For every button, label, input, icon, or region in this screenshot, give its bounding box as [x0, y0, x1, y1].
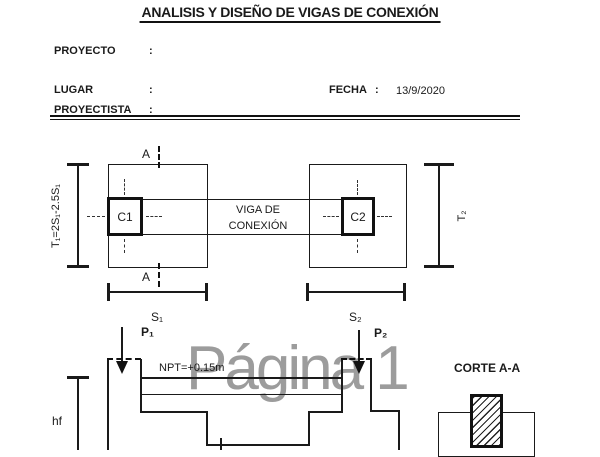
load-arrow-2-head [353, 361, 365, 374]
section-cut-letter-bottom: A [142, 270, 150, 284]
column2-left-edge-line [341, 359, 343, 413]
dim-s2-line [308, 291, 405, 293]
load-arrow-1-shaft [121, 327, 123, 362]
pit-left-wall-line [206, 411, 208, 446]
document-page: { "colors": { "ink": "#1a1a1a", "waterma… [0, 0, 600, 450]
hf-dim-tick [67, 376, 89, 379]
dim-t1-label: T₁=2S₁-2.5S₁ [50, 184, 62, 248]
fecha-value: 13/9/2020 [396, 85, 445, 97]
column2-centerline-left [323, 216, 339, 217]
dim-t2-tick-bottom [424, 265, 454, 268]
column2-right-edge-line [370, 359, 372, 412]
section-cut-line-top [158, 146, 160, 168]
hf-label: hf [52, 414, 62, 428]
column2-centerline-top [357, 180, 358, 195]
page-title: ANALISIS Y DISEÑO DE VIGAS DE CONEXIÓN [140, 4, 441, 23]
lugar-label: LUGAR [54, 84, 93, 96]
floor-slab-top-line [140, 377, 342, 379]
pit-right-wall-line [308, 411, 310, 446]
column1-centerline-bottom [124, 239, 125, 253]
floor-slab-bottom-line [141, 394, 341, 395]
section-cut-letter-top: A [142, 147, 150, 161]
pit-center-tick [220, 438, 222, 450]
dim-t1-line [77, 165, 79, 267]
dim-s2-label: S₂ [349, 310, 362, 324]
column1-centerline-right [146, 216, 162, 217]
beam-top-line [143, 199, 342, 200]
dim-s1-tick-right [205, 283, 208, 301]
load-arrow-1-head [116, 361, 128, 374]
right-step-line [370, 410, 400, 412]
dim-s2-tick-right [403, 283, 406, 301]
column2-label: C2 [350, 210, 365, 224]
load2-label: P₂ [374, 326, 387, 340]
column1-label: C1 [117, 210, 132, 224]
column2-top-dashed-line [341, 358, 372, 360]
dim-t1-tick-top [67, 163, 89, 166]
lugar-colon: : [149, 84, 153, 96]
dim-t2-label: T₂ [456, 211, 468, 222]
right-wall-outer-line [398, 410, 400, 450]
column1-right-edge-line [140, 359, 142, 413]
fecha-colon: : [375, 84, 379, 96]
hf-dim-line [77, 378, 79, 450]
beam-label-line2: CONEXIÓN [216, 218, 300, 234]
column1-box: C1 [107, 197, 143, 236]
column2-centerline-bottom [357, 239, 358, 253]
npt-level-label: NPT=+0.15m [159, 362, 224, 374]
beam-label-line1: VIGA DE [216, 202, 300, 218]
dim-s1-label: S₁ [151, 310, 163, 324]
dim-t2-line [438, 165, 440, 267]
dim-s1-tick-left [107, 283, 110, 301]
dim-t1-tick-bottom [67, 265, 89, 268]
column1-centerline-top [124, 179, 125, 195]
footing2-top-line [308, 411, 343, 413]
column1-centerline-left [87, 216, 105, 217]
column2-box: C2 [341, 197, 375, 236]
dim-s2-tick-left [306, 283, 309, 301]
column-section-hatched [470, 394, 503, 448]
dim-t2-tick-top [424, 163, 454, 166]
header-divider [50, 115, 520, 120]
beam-bottom-line [143, 234, 342, 235]
column2-centerline-right [377, 216, 392, 217]
load1-label: P₁ [141, 325, 154, 339]
proyecto-label: PROYECTO [54, 45, 116, 57]
fecha-label: FECHA [329, 84, 367, 96]
footing1-top-line [140, 411, 208, 413]
corte-title: CORTE A-A [454, 361, 520, 375]
dim-s1-line [108, 291, 207, 293]
section-cut-line-bottom [158, 263, 160, 287]
proyecto-colon: : [149, 45, 153, 57]
beam-label: VIGA DE CONEXIÓN [216, 202, 300, 234]
column1-top-dashed-line [107, 358, 141, 360]
left-wall-outer-line [107, 359, 109, 450]
